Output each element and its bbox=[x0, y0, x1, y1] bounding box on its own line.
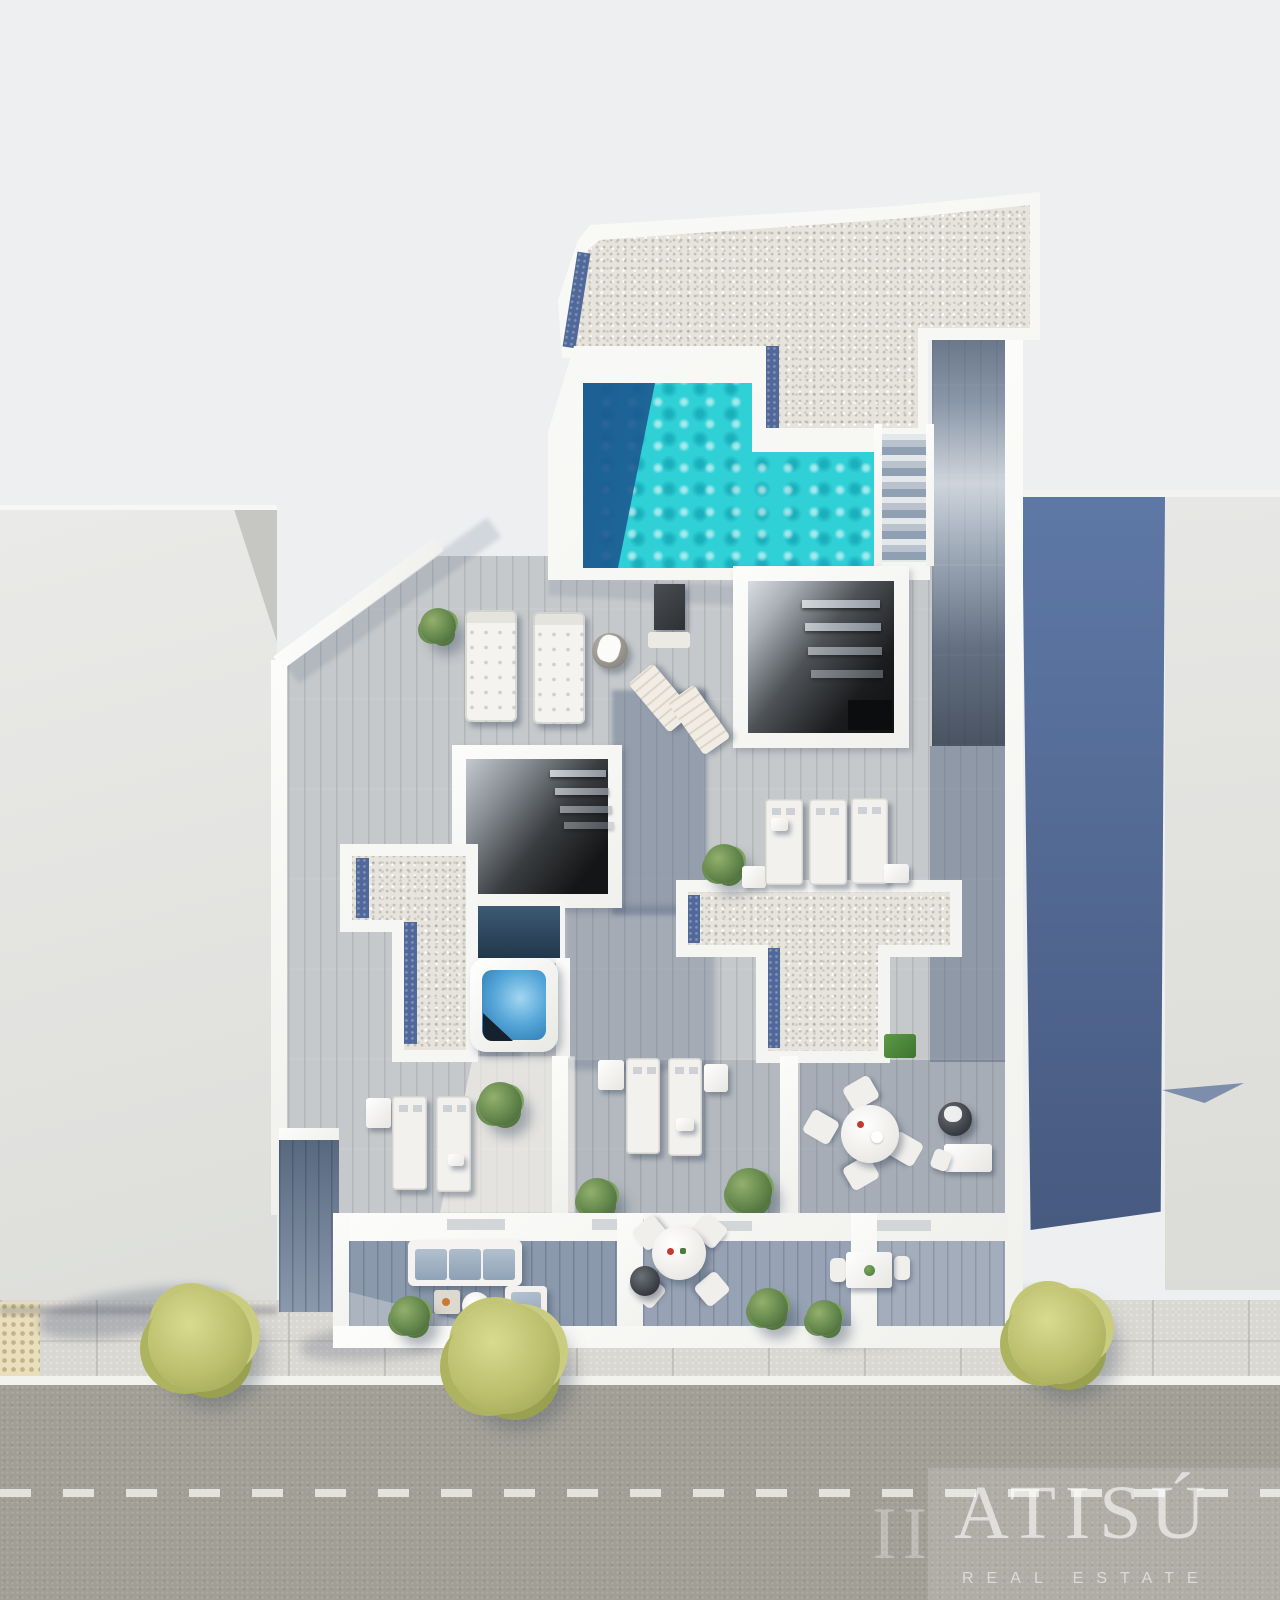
roof-shadow-strip bbox=[688, 895, 700, 943]
terrace-divider-wall bbox=[552, 1056, 568, 1213]
sunbed bbox=[465, 610, 517, 722]
shower-mat bbox=[648, 632, 690, 648]
watermark-box: ATISÚ REAL ESTATE bbox=[928, 1468, 1280, 1600]
sun-lounger bbox=[668, 1058, 702, 1156]
street-tree bbox=[148, 1288, 252, 1392]
stair-tread bbox=[805, 623, 881, 631]
towel bbox=[944, 1106, 962, 1122]
side-passage-wall bbox=[279, 1128, 339, 1140]
potted-plant bbox=[704, 844, 744, 884]
street-tree bbox=[448, 1302, 560, 1414]
bistro-table bbox=[846, 1252, 892, 1288]
serving-tray bbox=[676, 1118, 694, 1131]
potted-plant bbox=[806, 1300, 842, 1336]
side-passage-deck bbox=[279, 1140, 339, 1312]
lightwell bbox=[478, 906, 560, 958]
balcony-floor bbox=[877, 1241, 1005, 1326]
table-plant bbox=[864, 1265, 875, 1276]
stairwell-void bbox=[848, 700, 892, 730]
table-plate bbox=[871, 1131, 883, 1143]
balcony-front-parapet bbox=[333, 1326, 1023, 1348]
stair-stringer bbox=[874, 424, 882, 566]
serving-tray bbox=[448, 1154, 464, 1166]
watermark-fragment: II bbox=[872, 1492, 933, 1577]
sofa-cushion bbox=[415, 1249, 447, 1280]
coffee-table bbox=[434, 1290, 460, 1314]
sofa bbox=[408, 1240, 522, 1286]
roof-shadow-strip bbox=[768, 948, 780, 1048]
pouf bbox=[630, 1266, 660, 1296]
roof-shadow-strip bbox=[766, 346, 779, 428]
grass-patch bbox=[884, 1034, 916, 1058]
street-tree bbox=[1008, 1286, 1106, 1384]
watermark-tagline-text: REAL ESTATE bbox=[962, 1570, 1211, 1588]
roof-shadow-strip bbox=[404, 922, 417, 1044]
side-table bbox=[704, 1064, 728, 1092]
potted-plant bbox=[577, 1178, 617, 1218]
stair-tread bbox=[560, 806, 612, 813]
neighbor-building-left bbox=[0, 505, 277, 1310]
sun-lounger bbox=[436, 1096, 471, 1192]
stair-tread bbox=[808, 647, 882, 655]
dining-table bbox=[841, 1105, 899, 1163]
stair-tread bbox=[550, 770, 606, 777]
stair-tread bbox=[811, 670, 883, 678]
aerial-render-scene: II ATISÚ REAL ESTATE bbox=[0, 0, 1280, 1600]
sun-lounger bbox=[809, 799, 847, 885]
side-table bbox=[366, 1098, 391, 1128]
sofa-cushion bbox=[483, 1249, 515, 1280]
sun-lounger bbox=[851, 798, 888, 884]
roof-shadow-strip bbox=[356, 858, 369, 918]
neighbor-left-roof-facet bbox=[0, 505, 277, 1310]
bistro-chair bbox=[894, 1256, 910, 1280]
interior-wall bbox=[556, 958, 570, 1058]
side-table bbox=[742, 866, 766, 888]
potted-plant bbox=[478, 1082, 522, 1126]
table-decor bbox=[857, 1121, 864, 1128]
side-table bbox=[598, 1060, 624, 1090]
table-decor bbox=[680, 1248, 686, 1254]
stair-tread bbox=[802, 600, 880, 608]
stairwell-skylight-upper bbox=[748, 581, 894, 733]
neighbor-left-roof-edge bbox=[0, 505, 277, 510]
right-parapet-wall bbox=[1005, 330, 1023, 1348]
neighbor-building-right-roof bbox=[1165, 497, 1280, 1290]
sun-lounger bbox=[626, 1058, 660, 1154]
sun-lounger bbox=[765, 799, 803, 885]
jacuzzi bbox=[470, 958, 558, 1052]
terrace-divider-wall bbox=[780, 1056, 798, 1213]
sofa-cushion bbox=[449, 1249, 481, 1280]
stair-tread bbox=[564, 822, 614, 829]
roof-antenna-shadow bbox=[1162, 1083, 1244, 1103]
dining-table bbox=[652, 1226, 706, 1280]
outdoor-shower-panel bbox=[654, 584, 685, 630]
stair-stringer bbox=[926, 424, 934, 566]
table-decor bbox=[442, 1298, 450, 1306]
neighbor-building-right-wall bbox=[1022, 497, 1165, 1230]
potted-plant bbox=[390, 1296, 430, 1336]
potted-plant bbox=[726, 1168, 772, 1214]
sunbed bbox=[533, 612, 585, 724]
table-decor bbox=[667, 1248, 674, 1255]
watermark-brand-text: ATISÚ bbox=[954, 1470, 1214, 1557]
door-opening bbox=[875, 1220, 931, 1231]
corridor-light-gradient bbox=[932, 336, 1008, 746]
sun-lounger bbox=[392, 1096, 427, 1190]
potted-plant bbox=[420, 608, 456, 644]
side-table bbox=[884, 864, 909, 883]
potted-plant bbox=[748, 1288, 788, 1328]
bistro-chair bbox=[830, 1258, 846, 1282]
serving-tray bbox=[771, 818, 788, 831]
pool-stairs bbox=[882, 434, 926, 562]
door-opening bbox=[447, 1219, 505, 1230]
stair-tread bbox=[555, 788, 609, 795]
stairwell-skylight-mid bbox=[466, 759, 608, 894]
